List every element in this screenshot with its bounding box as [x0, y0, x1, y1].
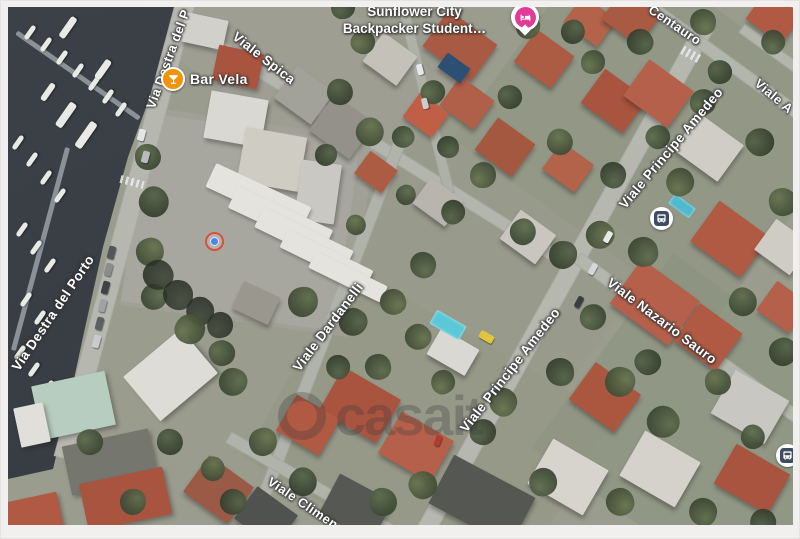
hostel-label-line2: Backpacker Student… [322, 20, 507, 37]
bus-stop-icon[interactable] [776, 444, 794, 467]
hostel-label: Sunflower City Backpacker Student… [322, 7, 507, 37]
poi-bar-vela[interactable]: Bar Vela [161, 67, 248, 91]
bus-stop-icon[interactable] [650, 207, 673, 230]
poi-sunflower-hostel[interactable]: Sunflower City Backpacker Student… [322, 7, 539, 37]
satellite-map[interactable]: casait Via Destra del PVia Destra del Po… [8, 7, 793, 525]
location-marker [205, 232, 224, 251]
hostel-label-line1: Sunflower City [322, 7, 507, 20]
screenshot-frame: casait Via Destra del PVia Destra del Po… [0, 0, 800, 539]
cocktail-icon[interactable] [161, 67, 185, 91]
bed-icon[interactable] [511, 7, 539, 31]
bar-vela-label: Bar Vela [190, 71, 248, 87]
markers-layer: Bar Vela Sunflower City Backpacker Stude… [8, 7, 793, 525]
